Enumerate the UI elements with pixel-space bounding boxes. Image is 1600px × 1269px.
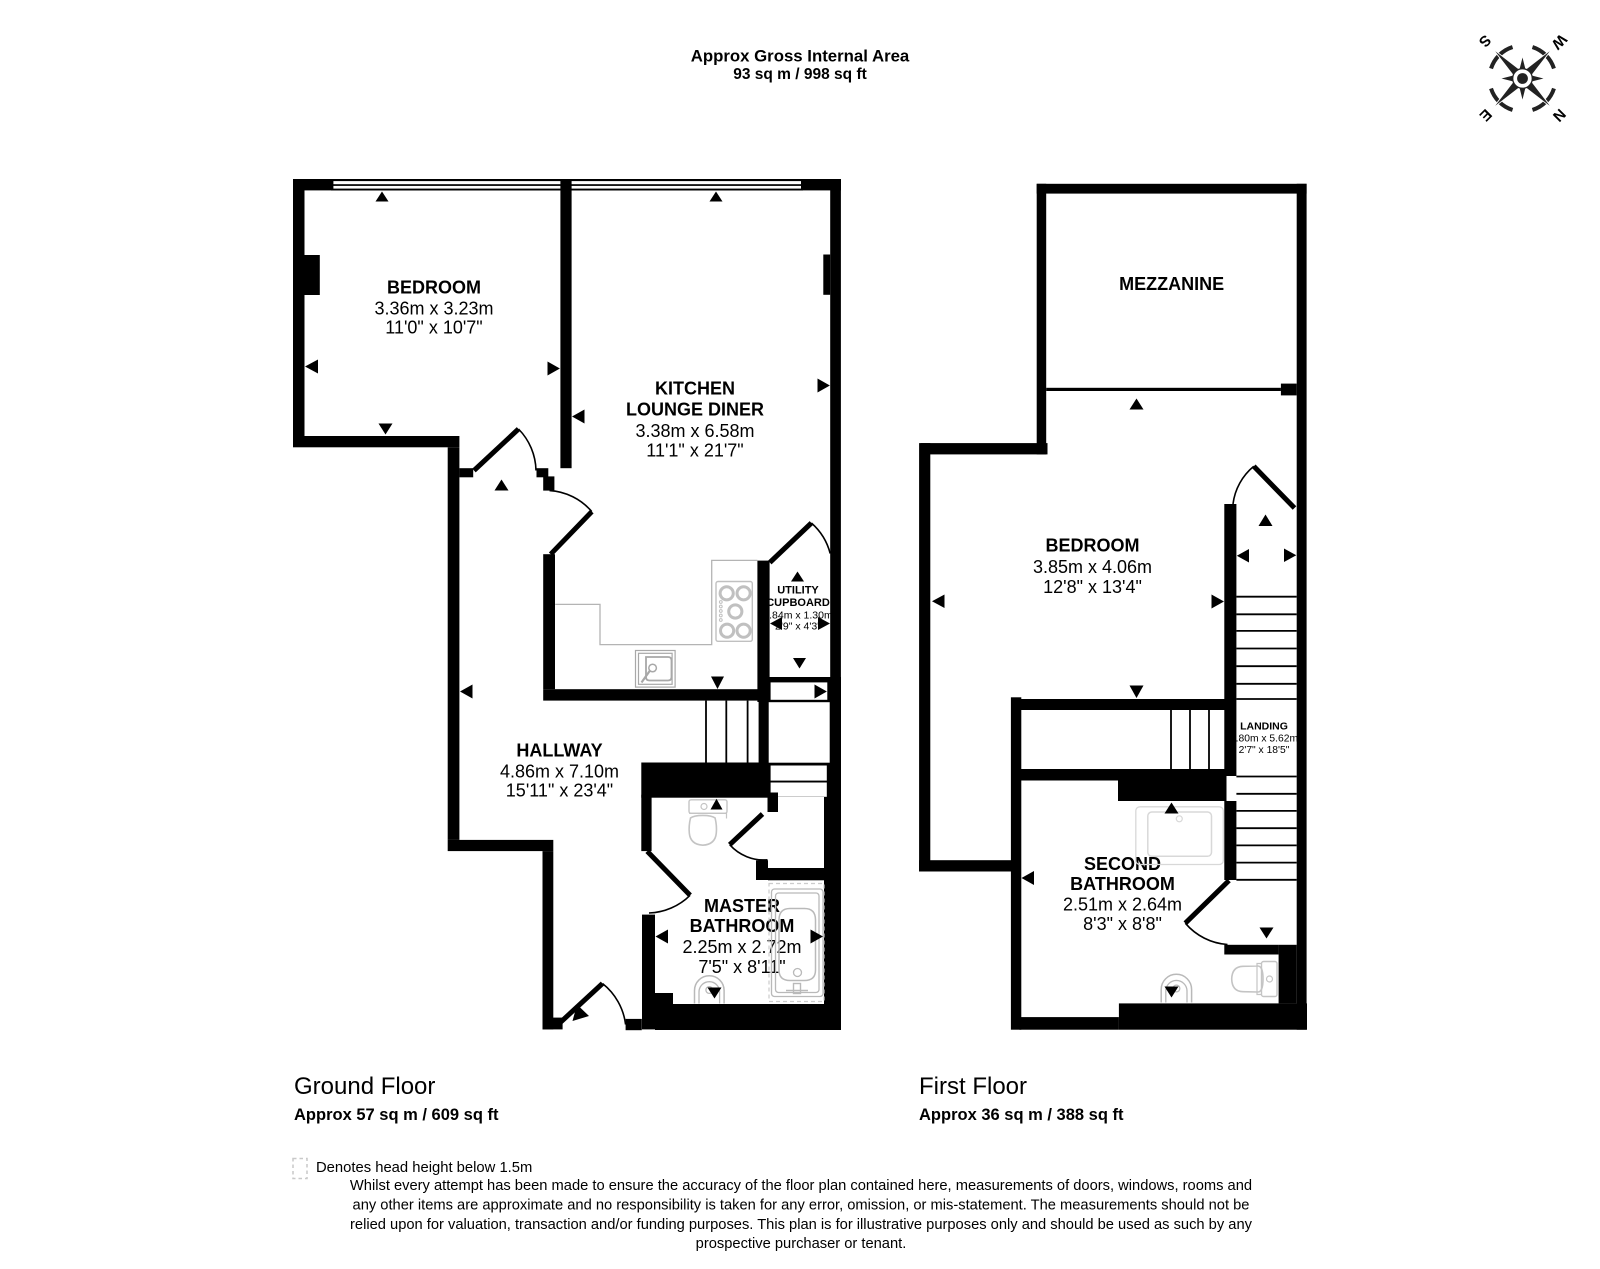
svg-text:11'1" x 21'7": 11'1" x 21'7" bbox=[646, 441, 743, 461]
svg-text:relied upon for valuation, tra: relied upon for valuation, transaction a… bbox=[350, 1217, 1253, 1233]
svg-text:LOUNGE DINER: LOUNGE DINER bbox=[626, 400, 764, 420]
svg-text:KITCHEN: KITCHEN bbox=[655, 379, 735, 399]
svg-text:2.51m x 2.64m: 2.51m x 2.64m bbox=[1063, 895, 1182, 915]
svg-text:2.25m x 2.72m: 2.25m x 2.72m bbox=[682, 937, 801, 957]
svg-text:0.80m x 5.62m: 0.80m x 5.62m bbox=[1230, 734, 1298, 745]
svg-text:7'5" x 8'11": 7'5" x 8'11" bbox=[698, 957, 785, 977]
svg-text:8'3" x 8'8": 8'3" x 8'8" bbox=[1083, 914, 1162, 934]
svg-text:Denotes head height below 1.5m: Denotes head height below 1.5m bbox=[316, 1160, 532, 1176]
svg-text:Ground Floor: Ground Floor bbox=[294, 1073, 435, 1100]
svg-text:Whilst every attempt has been: Whilst every attempt has been made to en… bbox=[350, 1178, 1252, 1194]
svg-text:93 sq m / 998 sq ft: 93 sq m / 998 sq ft bbox=[733, 66, 867, 83]
svg-text:4.86m x 7.10m: 4.86m x 7.10m bbox=[500, 762, 619, 782]
svg-text:First Floor: First Floor bbox=[919, 1073, 1027, 1100]
svg-text:BATHROOM: BATHROOM bbox=[1070, 874, 1175, 894]
svg-text:15'11" x 23'4": 15'11" x 23'4" bbox=[506, 781, 613, 801]
svg-text:Approx Gross Internal Area: Approx Gross Internal Area bbox=[691, 47, 910, 66]
svg-text:12'8" x 13'4": 12'8" x 13'4" bbox=[1043, 577, 1142, 597]
svg-text:CUPBOARD: CUPBOARD bbox=[766, 597, 830, 609]
svg-text:BEDROOM: BEDROOM bbox=[387, 278, 481, 298]
svg-text:3.36m x 3.23m: 3.36m x 3.23m bbox=[374, 299, 493, 319]
svg-text:3.85m x 4.06m: 3.85m x 4.06m bbox=[1033, 557, 1152, 577]
svg-text:any other items are approximat: any other items are approximate and no r… bbox=[353, 1198, 1250, 1214]
svg-text:HALLWAY: HALLWAY bbox=[516, 741, 602, 761]
svg-text:Approx 36 sq m / 388 sq ft: Approx 36 sq m / 388 sq ft bbox=[919, 1106, 1124, 1124]
svg-text:2'7" x 18'5": 2'7" x 18'5" bbox=[1239, 745, 1290, 756]
svg-text:3.38m x 6.58m: 3.38m x 6.58m bbox=[635, 421, 754, 441]
svg-text:LANDING: LANDING bbox=[1240, 721, 1288, 733]
svg-text:UTILITY: UTILITY bbox=[777, 585, 819, 597]
svg-text:Approx 57 sq m / 609 sq ft: Approx 57 sq m / 609 sq ft bbox=[294, 1106, 499, 1124]
svg-text:prospective purchaser or tenan: prospective purchaser or tenant. bbox=[696, 1236, 907, 1252]
svg-text:BEDROOM: BEDROOM bbox=[1046, 536, 1140, 556]
svg-text:MEZZANINE: MEZZANINE bbox=[1119, 274, 1224, 294]
svg-text:11'0" x 10'7": 11'0" x 10'7" bbox=[385, 318, 482, 338]
